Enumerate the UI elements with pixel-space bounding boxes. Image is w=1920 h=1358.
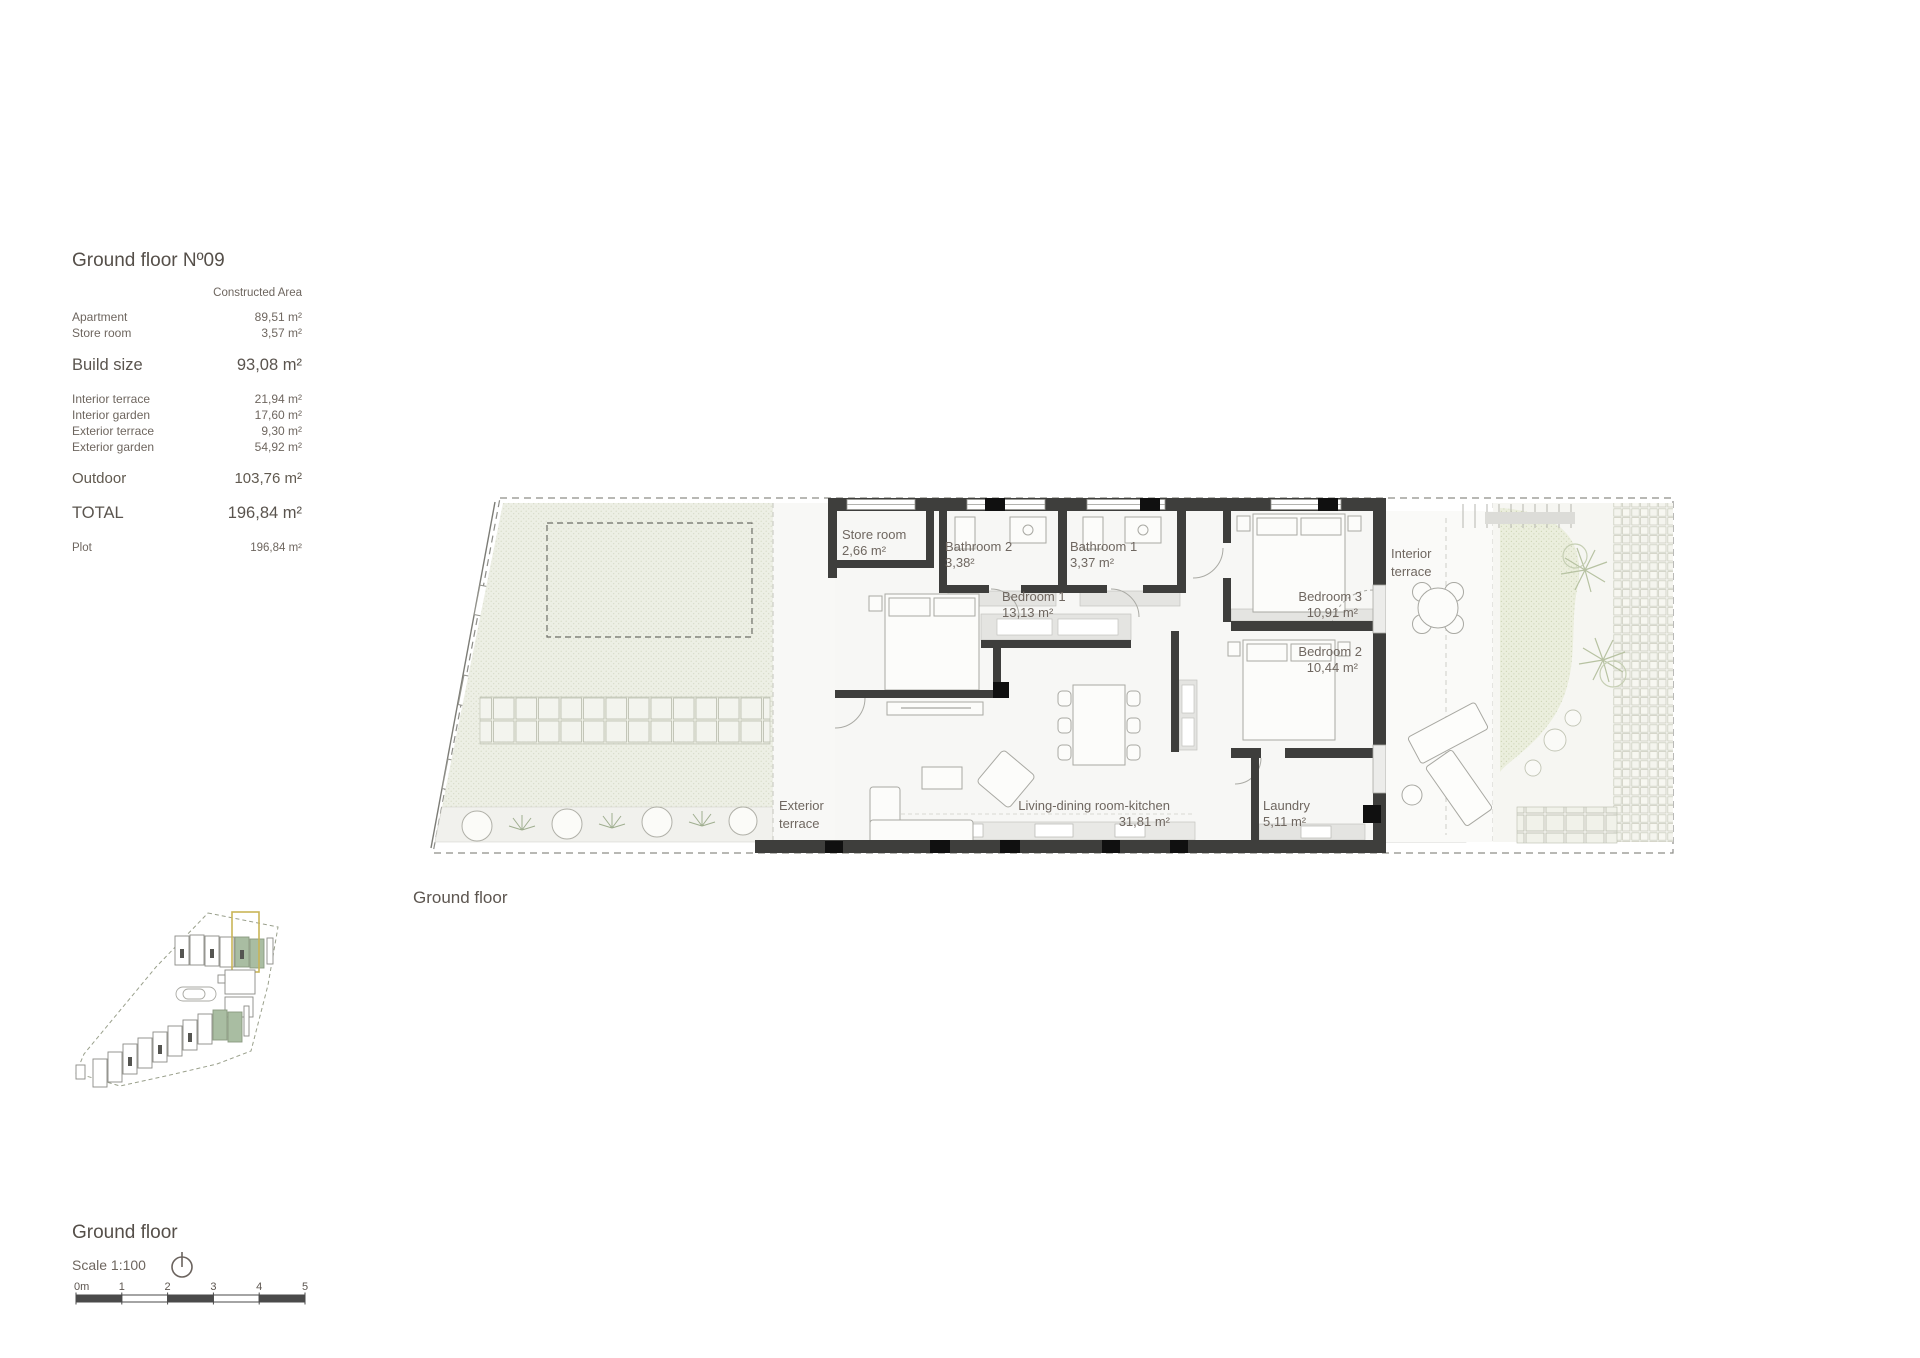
row-interior-terrace: Interior terrace 21,94 m² [72, 391, 302, 407]
room-label-living: Living-dining room-kitchen [1018, 798, 1170, 813]
scale-bar: 0m 1 2 3 4 5 [72, 1280, 312, 1310]
room-area-living: 31,81 m² [1119, 814, 1171, 829]
row-value: 54,92 m² [255, 439, 302, 455]
row-store-room: Store room 3,57 m² [72, 325, 302, 341]
room-label-bedroom1: Bedroom 1 [1002, 589, 1066, 604]
room-label-laundry: Laundry [1263, 798, 1310, 813]
site-location-minimap [62, 905, 292, 1100]
row-label: Outdoor [72, 470, 126, 487]
room-label-bedroom2: Bedroom 2 [1298, 644, 1362, 659]
zone-label-exterior-terrace-1: Exterior [779, 798, 824, 813]
stone-paving [1613, 503, 1673, 842]
scale-tick-3: 3 [210, 1281, 216, 1293]
scale-tick-0: 0m [74, 1281, 89, 1293]
row-label: Interior terrace [72, 391, 150, 407]
area-summary-panel: Ground floor Nº09 Constructed Area Apart… [72, 250, 302, 554]
scale-tick-1: 1 [119, 1281, 125, 1293]
room-area-store: 2,66 m² [842, 543, 887, 558]
row-value: 196,84 m² [250, 542, 302, 554]
interior-garden [1463, 503, 1673, 843]
row-value: 3,57 m² [261, 325, 302, 341]
room-area-laundry: 5,11 m² [1263, 814, 1307, 829]
row-label: TOTAL [72, 504, 124, 523]
zone-label-exterior-terrace-2: terrace [779, 816, 819, 831]
room-area-bedroom1: 13,13 m² [1002, 605, 1054, 620]
row-label: Plot [72, 542, 92, 554]
north-arrow-icon [168, 1251, 196, 1279]
floor-plan-drawing: Store room 2,66 m² Bathroom 2 3,38² Bath… [425, 490, 1675, 865]
row-label: Exterior terrace [72, 423, 154, 439]
row-plot: Plot 196,84 m² [72, 542, 302, 554]
row-label: Interior garden [72, 407, 150, 423]
garden-pavers [480, 697, 770, 744]
row-value: 93,08 m² [237, 356, 302, 375]
exterior-terrace [773, 503, 835, 842]
row-value: 9,30 m² [261, 423, 302, 439]
row-total: TOTAL 196,84 m² [72, 504, 302, 523]
plan-caption: Ground floor [413, 888, 508, 908]
scale-bar-segments [76, 1293, 305, 1305]
lower-unit-row [76, 1006, 249, 1087]
room-area-bedroom2: 10,44 m² [1307, 660, 1359, 675]
scale-label: Scale 1:100 [72, 1257, 146, 1273]
scale-tick-4: 4 [256, 1281, 262, 1293]
scale-tick-5: 5 [302, 1281, 308, 1293]
footer-floor-title: Ground floor [72, 1222, 332, 1244]
constructed-area-header: Constructed Area [72, 287, 302, 299]
row-value: 196,84 m² [228, 504, 302, 523]
scale-bar-ticks: 0m 1 2 3 4 5 [74, 1281, 308, 1293]
zone-label-interior-terrace-2: terrace [1391, 564, 1431, 579]
garden-pavers-small [1517, 807, 1617, 843]
row-build-size: Build size 93,08 m² [72, 356, 302, 375]
row-label: Build size [72, 356, 143, 375]
title-block: Ground floor Scale 1:100 0m 1 2 3 4 5 [72, 1222, 332, 1315]
row-exterior-terrace: Exterior terrace 9,30 m² [72, 423, 302, 439]
room-label-bathroom2: Bathroom 2 [945, 539, 1012, 554]
row-apartment: Apartment 89,51 m² [72, 309, 302, 325]
row-interior-garden: Interior garden 17,60 m² [72, 407, 302, 423]
room-area-bathroom2: 3,38² [945, 555, 975, 570]
scale-tick-2: 2 [165, 1281, 171, 1293]
row-outdoor-total: Outdoor 103,76 m² [72, 470, 302, 487]
zone-label-interior-terrace-1: Interior [1391, 546, 1432, 561]
row-label: Apartment [72, 309, 127, 325]
row-label: Exterior garden [72, 439, 154, 455]
room-label-bedroom3: Bedroom 3 [1298, 589, 1362, 604]
room-label-bathroom1: Bathroom 1 [1070, 539, 1137, 554]
row-value: 89,51 m² [255, 309, 302, 325]
row-exterior-garden: Exterior garden 54,92 m² [72, 439, 302, 455]
row-value: 103,76 m² [234, 470, 302, 487]
row-label: Store room [72, 325, 131, 341]
terrace-table-set [1413, 583, 1464, 634]
room-area-bathroom1: 3,37 m² [1070, 555, 1115, 570]
sheet-title: Ground floor Nº09 [72, 250, 302, 272]
room-label-store: Store room [842, 527, 906, 542]
row-value: 17,60 m² [255, 407, 302, 423]
room-area-bedroom3: 10,91 m² [1307, 605, 1359, 620]
row-value: 21,94 m² [255, 391, 302, 407]
